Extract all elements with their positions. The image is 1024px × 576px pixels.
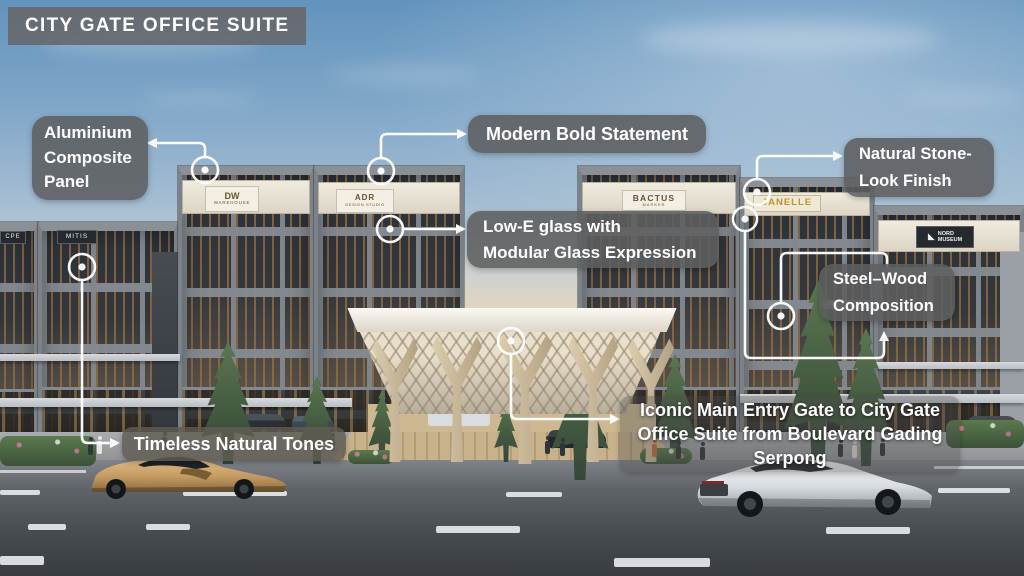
- connector-aluminium: [156, 143, 205, 157]
- marker-dot: [201, 166, 208, 173]
- callout-text: Aluminium: [44, 121, 136, 146]
- marker-dot: [741, 215, 748, 222]
- callout-text: Natural Stone-: [859, 141, 994, 167]
- callout-text: Composition: [833, 293, 955, 319]
- connector-timeless: [82, 280, 110, 443]
- marker-dot: [377, 167, 384, 174]
- callout-modern-bold-statement: Modern Bold Statement: [468, 115, 706, 153]
- callout-text: Serpong: [753, 446, 826, 470]
- city-gate-annotated-rendering: CPE MITIS DW WAREHOUSE ADR DESIGN STUDIO…: [0, 0, 1024, 576]
- connector-stone: [757, 156, 833, 179]
- callout-text: Office Suite from Boulevard Gading: [637, 422, 942, 446]
- marker-dot: [777, 312, 784, 319]
- callout-text: Modern Bold Statement: [486, 124, 688, 145]
- arrowhead-lowe: [456, 224, 466, 234]
- callout-text: Iconic Main Entry Gate to City Gate: [640, 398, 940, 422]
- page-title: CITY GATE OFFICE SUITE: [8, 7, 306, 45]
- callout-text: Composite: [44, 146, 136, 171]
- callout-text: Modular Glass Expression: [483, 240, 719, 266]
- callout-low-e-glass: Low-E glass with Modular Glass Expressio…: [467, 211, 719, 268]
- arrowhead-steelwood: [879, 331, 889, 341]
- callout-text: Timeless Natural Tones: [134, 434, 334, 455]
- callout-steel-wood-composition: Steel–Wood Composition: [819, 264, 955, 321]
- marker-dot: [386, 225, 393, 232]
- page-title-text: CITY GATE OFFICE SUITE: [25, 15, 289, 36]
- callout-text: Low-E glass with: [483, 214, 719, 240]
- callout-aluminium-composite-panel: Aluminium Composite Panel: [32, 116, 148, 200]
- callout-iconic-main-entry-gate: Iconic Main Entry Gate to City Gate Offi…: [620, 396, 960, 472]
- callout-timeless-natural-tones: Timeless Natural Tones: [122, 427, 346, 461]
- callout-text: Steel–Wood: [833, 266, 955, 292]
- arrowhead-modern: [457, 129, 467, 139]
- arrowhead-timeless: [110, 438, 120, 448]
- callout-text: Panel: [44, 170, 136, 195]
- connector-modern: [381, 134, 457, 158]
- connector-iconic: [511, 354, 610, 419]
- marker-dot: [753, 188, 760, 195]
- marker-dot: [507, 337, 514, 344]
- arrowhead-iconic: [610, 414, 620, 424]
- arrowhead-stone: [833, 151, 843, 161]
- marker-dot: [78, 263, 85, 270]
- callout-text: Look Finish: [859, 168, 994, 194]
- callout-natural-stone-look-finish: Natural Stone- Look Finish: [844, 138, 994, 197]
